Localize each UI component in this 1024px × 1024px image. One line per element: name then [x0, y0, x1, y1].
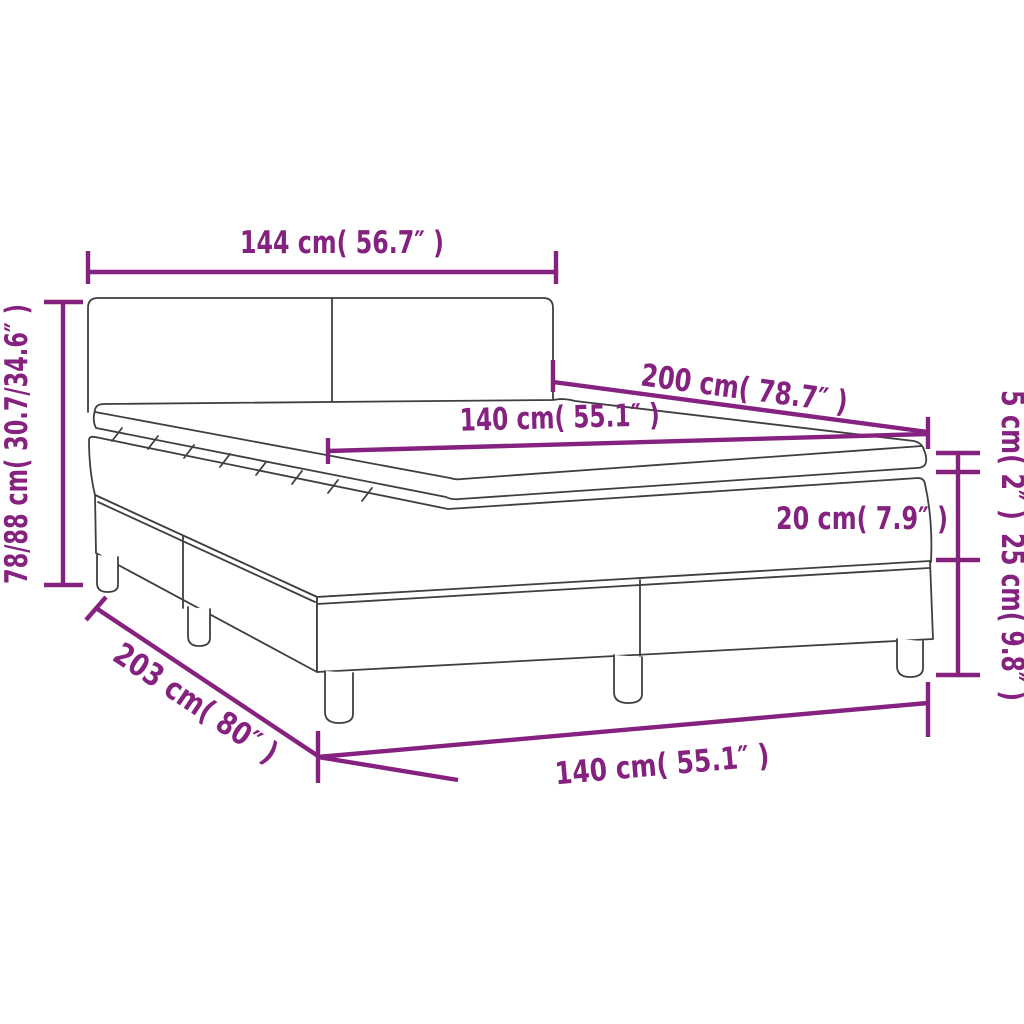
base-width-label: 140 cm( 55.1″ ): [553, 738, 770, 793]
headboard-width-label: 144 cm( 56.7″ ): [240, 225, 444, 261]
topper-height-label: 5 cm( 2″ ): [994, 390, 1024, 520]
bed-leg-mid-left: [188, 607, 210, 646]
bed-dimension-diagram: 144 cm( 56.7″ ) 78/88 cm( 30.7/34.6″ ) 2…: [0, 0, 1024, 1024]
dim-total-height: 78/88 cm( 30.7/34.6″ ): [0, 302, 83, 585]
bed-leg-front-corner: [325, 671, 353, 723]
bed-leg-front-middle: [614, 655, 642, 703]
headboard: [88, 298, 553, 412]
mattress-width-label: 140 cm( 55.1″ ): [459, 397, 660, 439]
dim-headboard-width: 144 cm( 56.7″ ): [88, 225, 556, 284]
bed-length-label: 200 cm( 78.7″ ): [639, 357, 850, 420]
base-height-label: 25 cm( 9.8″ ): [994, 533, 1024, 701]
base-length-label: 203 cm( 80″ ): [107, 636, 285, 771]
bed-leg-back-left: [97, 555, 118, 592]
bed-leg-front-right: [897, 639, 923, 677]
diagram-canvas: 144 cm( 56.7″ ) 78/88 cm( 30.7/34.6″ ) 2…: [0, 0, 1024, 1024]
total-height-label: 78/88 cm( 30.7/34.6″ ): [0, 304, 35, 584]
mattress-height-label: 20 cm( 7.9″ ): [776, 501, 948, 537]
